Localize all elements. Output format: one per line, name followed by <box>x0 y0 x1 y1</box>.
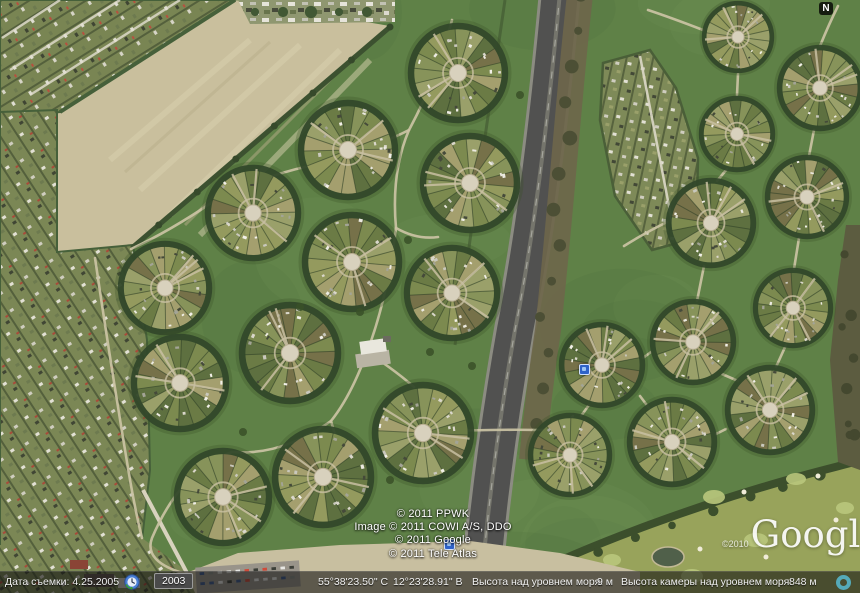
history-clock-icon[interactable] <box>124 574 140 590</box>
garden-circle <box>696 93 777 174</box>
camera-altitude-label: Высота камеры над уровнем моря: <box>621 576 792 588</box>
copyright-line: © 2011 Google <box>338 534 528 547</box>
photo-marker-icon[interactable] <box>579 364 590 375</box>
imagery-date-value: 4.25.2005 <box>72 576 119 588</box>
garden-circle <box>699 0 776 76</box>
north-indicator[interactable]: N <box>819 2 833 15</box>
status-bar: Дата съемки: 4.25.2005 2003 55°38'23.50"… <box>0 571 860 593</box>
garden-circle <box>295 97 402 204</box>
camera-altitude-value: 848 м <box>789 576 817 588</box>
historical-imagery-year-badge[interactable]: 2003 <box>154 573 193 589</box>
copyright-line: Image © 2011 COWI A/S, DDO <box>338 521 528 534</box>
pond <box>652 547 684 567</box>
garden-circle <box>525 410 615 500</box>
watermark-year: ©2010 <box>722 539 749 549</box>
garden-circle <box>299 209 406 316</box>
garden-circle <box>368 378 477 487</box>
garden-circle <box>624 394 720 490</box>
google-logo: Google <box>751 516 860 554</box>
latitude-readout: 55°38'23.50" С <box>318 576 388 588</box>
garden-circle <box>647 296 739 388</box>
longitude-readout: 12°23'28.91" В <box>393 576 463 588</box>
google-earth-viewport: N © 2011 PPWK Image © 2011 COWI A/S, DDO… <box>0 0 860 593</box>
photo-marker-glyph <box>582 367 586 371</box>
satellite-map[interactable] <box>0 0 860 593</box>
garden-circle <box>663 175 759 271</box>
garden-circle <box>417 130 524 237</box>
copyright-attribution: © 2011 PPWK Image © 2011 COWI A/S, DDO ©… <box>338 508 528 561</box>
google-watermark: ©2010 Google <box>722 516 860 554</box>
garden-circle <box>750 265 836 351</box>
garden-circle <box>202 162 305 265</box>
garden-circle <box>556 319 648 411</box>
copyright-line: © 2011 Tele Atlas <box>338 548 528 561</box>
garden-circle <box>722 362 818 458</box>
elevation-value: 9 м <box>597 576 613 588</box>
elevation-label: Высота над уровнем моря: <box>472 576 603 588</box>
imagery-date: Дата съемки: 4.25.2005 <box>5 576 119 588</box>
copyright-line: © 2011 PPWK <box>338 508 528 521</box>
imagery-date-label: Дата съемки: <box>5 576 69 588</box>
garden-circle <box>128 331 233 436</box>
garden-circle <box>401 242 504 345</box>
garden-circle <box>115 238 216 339</box>
garden-circle <box>171 445 276 550</box>
garden-circle <box>405 20 512 127</box>
streaming-indicator-icon <box>836 575 851 590</box>
garden-circle <box>762 152 852 242</box>
garden-circle <box>235 298 344 407</box>
